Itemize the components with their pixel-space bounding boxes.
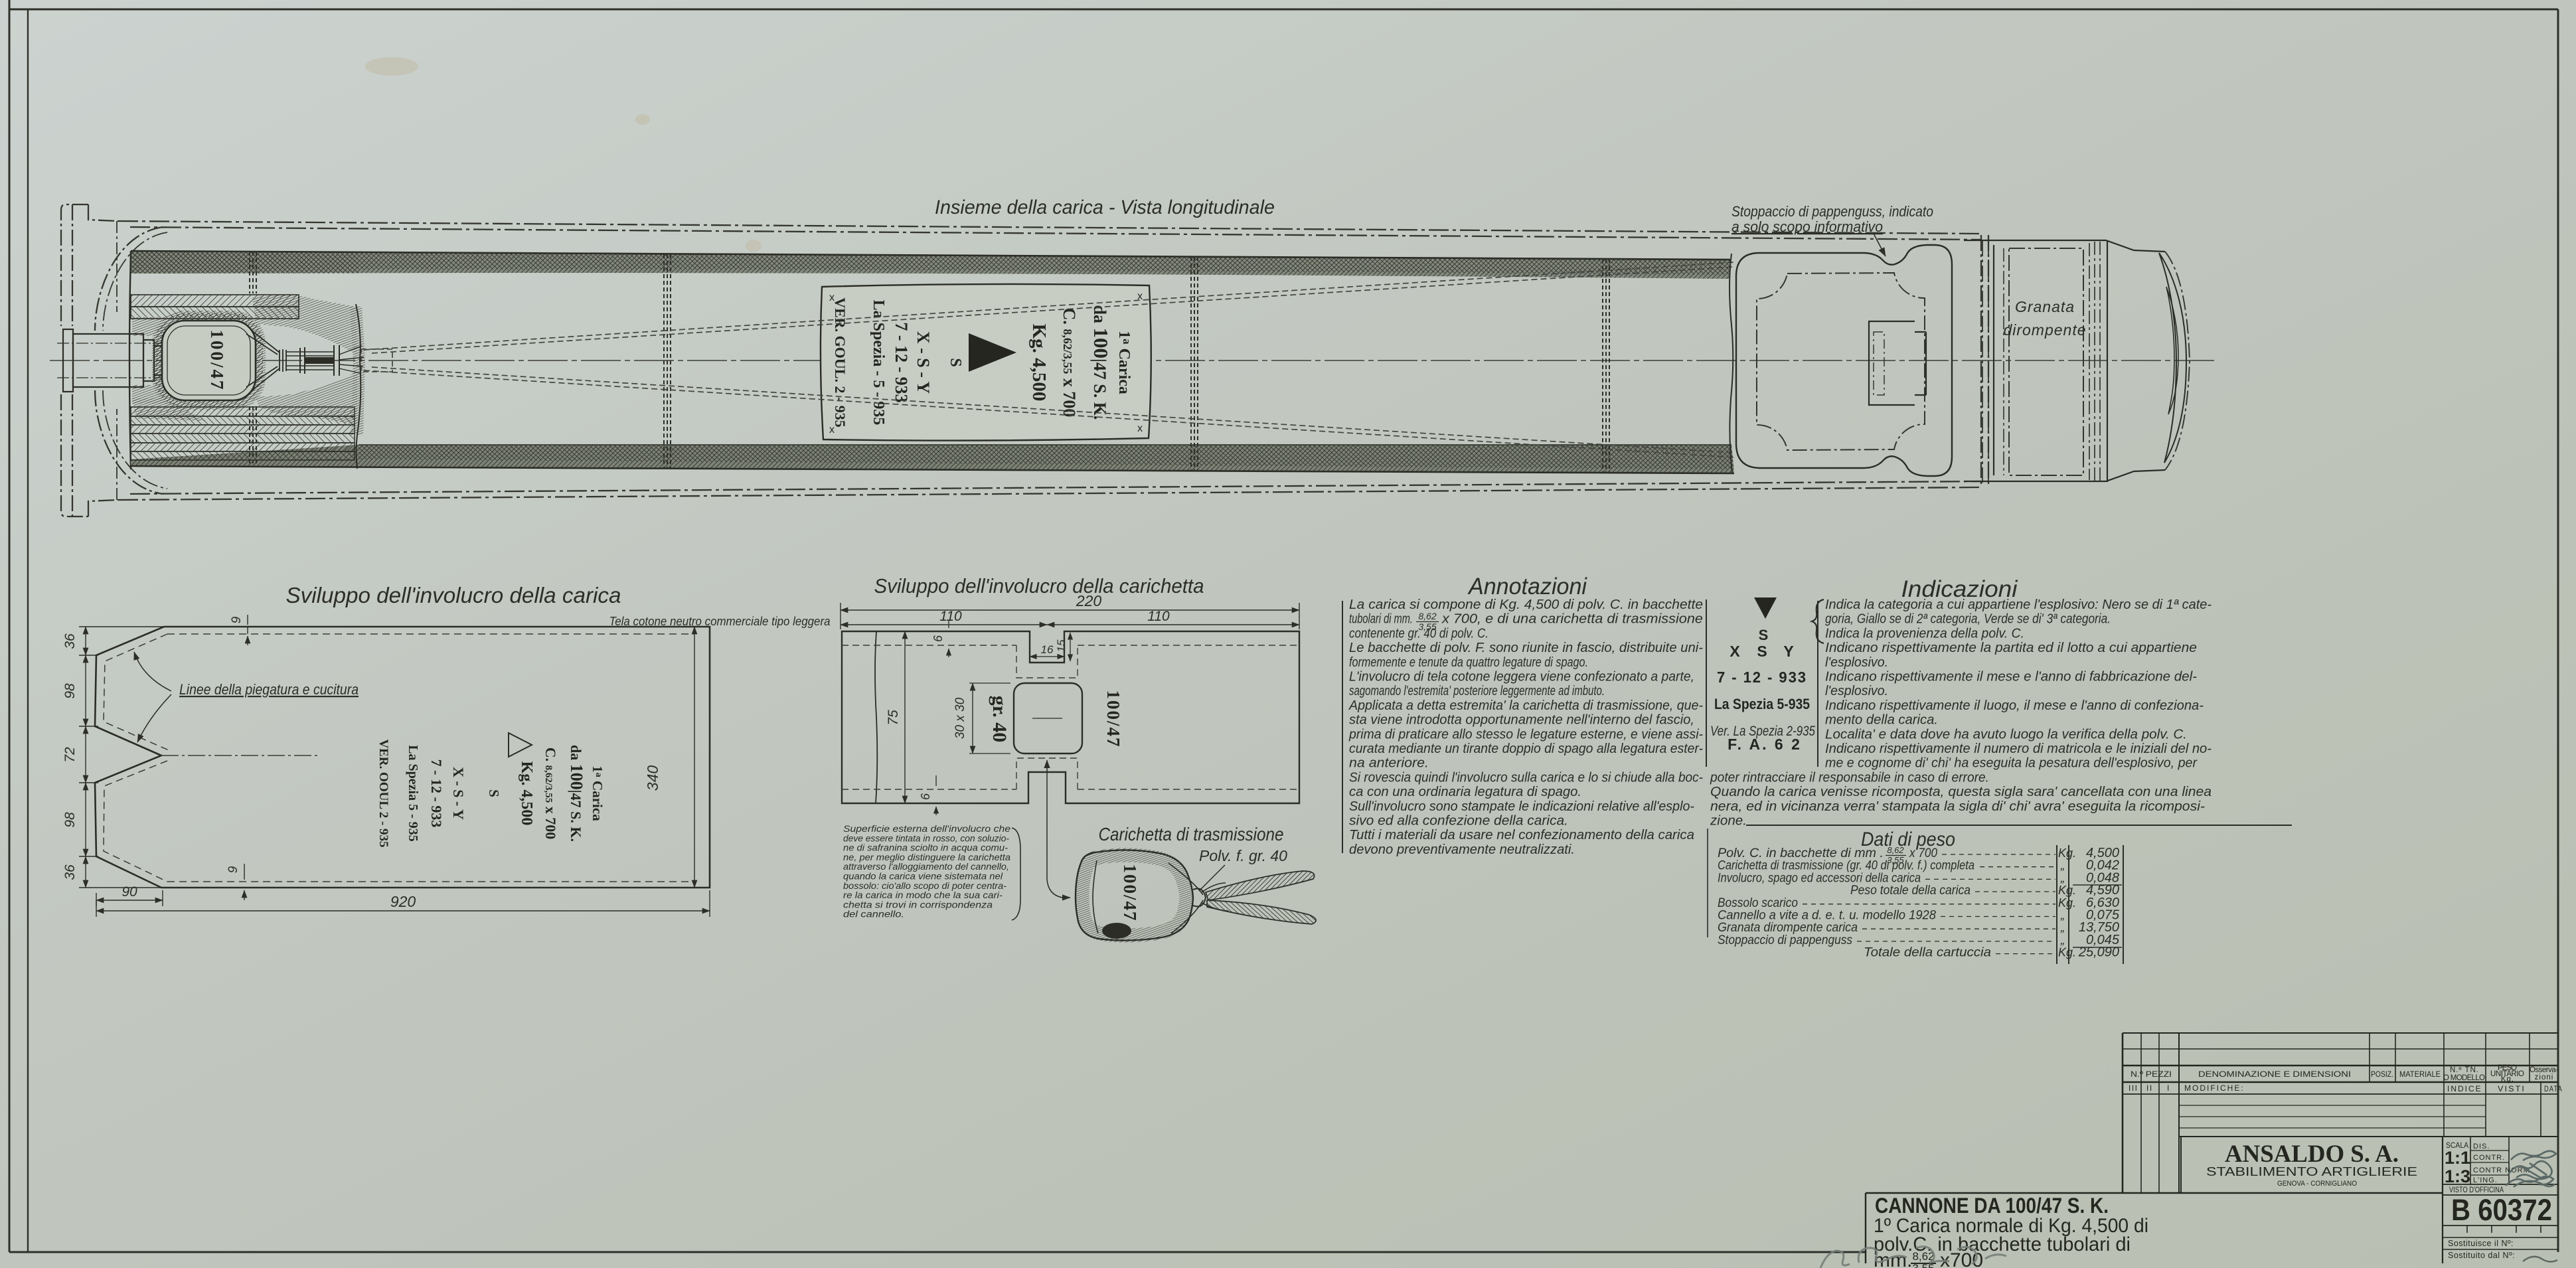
- svg-text:75: 75: [886, 710, 901, 726]
- svg-text:„: „: [2060, 909, 2065, 922]
- svg-text:Sviluppo dell'involucro dell: Sviluppo dell'involucro della carica: [286, 583, 621, 607]
- svg-text:Indica la categoria a cui appa: Indica la categoria a cui appartiene l'e…: [1825, 597, 2212, 612]
- svg-text:15: 15: [1055, 639, 1068, 652]
- svg-text:Y: Y: [1783, 643, 1793, 660]
- svg-text:100/47: 100/47: [207, 329, 227, 391]
- svg-text:STABILIMENTO ARTIGLIERIE: STABILIMENTO ARTIGLIERIE: [2206, 1165, 2417, 1178]
- svg-text:ne di safranina sciolto in acq: ne di safranina sciolto in acqua comu-: [843, 843, 1008, 853]
- svg-text:Indicano rispettivamente il lu: Indicano rispettivamente il luogo, il me…: [1825, 698, 2204, 713]
- svg-text:attraverso l'alloggiamento del: attraverso l'alloggiamento del cannello,: [843, 862, 1009, 872]
- svg-text:220: 220: [1076, 592, 1102, 609]
- svg-text:ca con una ordinaria legatura: ca con una ordinaria legatura di spago.: [1349, 785, 1581, 799]
- svg-text:N.º TN.: N.º TN.: [2450, 1066, 2479, 1074]
- svg-text:„: „: [2060, 871, 2065, 884]
- svg-text:a solo scopo informativo: a solo scopo informativo: [1731, 218, 1883, 235]
- svg-text:Kg. 4,500: Kg. 4,500: [518, 761, 535, 826]
- svg-text:VER. OOUL 2 - 935: VER. OOUL 2 - 935: [376, 739, 390, 847]
- svg-text:Granata: Granata: [2015, 298, 2075, 315]
- svg-text:72: 72: [62, 747, 78, 763]
- svg-text:O MODELLO: O MODELLO: [2443, 1074, 2486, 1082]
- svg-text:98: 98: [62, 812, 78, 828]
- svg-text:La Spezia - 5 - 935: La Spezia - 5 - 935: [870, 300, 887, 426]
- svg-text:L'involucro di tela cotone leg: L'involucro di tela cotone leggera viene…: [1349, 670, 1694, 684]
- svg-text:920: 920: [390, 893, 416, 910]
- svg-text:deve essere tintata in rosso,: deve essere tintata in rosso, con soluzi…: [843, 833, 1010, 843]
- svg-text:„: „: [2060, 933, 2065, 947]
- svg-text:Localita' e data dove ha avuto: Localita' e data dove ha avuto luogo la …: [1825, 727, 2187, 742]
- svg-text:100/47: 100/47: [1120, 864, 1140, 921]
- svg-text:curata mediante un tirante dop: curata mediante un tirante doppio di spa…: [1349, 742, 1703, 756]
- svg-text:La carica si compone di Kg. 4,: La carica si compone di Kg. 4,500 di pol…: [1349, 597, 1703, 612]
- svg-text:Sull'involucro sono stampate l: Sull'involucro sono stampate le indicazi…: [1349, 799, 1694, 814]
- svg-text:Superficie esterna dell'involu: Superficie esterna dell'involucro che: [843, 824, 1010, 834]
- svg-text:Totale della cartuccia: Totale della cartuccia: [1864, 946, 1991, 960]
- svg-text:6: 6: [919, 793, 932, 800]
- svg-text:Si rovescia quindi l'involucro: Si rovescia quindi l'involucro sulla car…: [1349, 770, 1703, 785]
- svg-text:DENOMINAZIONE E DIMENSIONI: DENOMINAZIONE E DIMENSIONI: [2198, 1070, 2351, 1079]
- svg-text:Tutti i materiali da usare nel: Tutti i materiali da usare nel confezion…: [1349, 828, 1694, 842]
- svg-text:MATERIALE: MATERIALE: [2399, 1070, 2441, 1079]
- svg-text:8,62: 8,62: [1887, 845, 1904, 855]
- svg-text:S: S: [1757, 643, 1767, 660]
- svg-text:l'esplosivo.: l'esplosivo.: [1825, 655, 1888, 670]
- svg-text:Indicano rispettivamente la pa: Indicano rispettivamente la partita ed i…: [1825, 641, 2197, 655]
- svg-text:X: X: [1730, 643, 1740, 660]
- svg-text:90: 90: [121, 884, 137, 900]
- svg-text:Linee della piegatura e cu: Linee della piegatura e cucitura: [179, 681, 359, 698]
- svg-text:Polv. f. gr. 40: Polv. f. gr. 40: [1199, 847, 1287, 864]
- svg-text:CONTR NORM: CONTR NORM: [2473, 1166, 2530, 1174]
- svg-text:VISTI: VISTI: [2498, 1084, 2526, 1093]
- svg-text:Kg.: Kg.: [2058, 846, 2076, 860]
- svg-text:x: x: [1137, 423, 1143, 434]
- svg-text:X - S - Y: X - S - Y: [914, 331, 933, 394]
- svg-text:nera, ed in vicinanza verra' s: nera, ed in vicinanza verra' stampata la…: [1710, 799, 2205, 814]
- svg-text:Sviluppo dell'involucro dell: Sviluppo dell'involucro della carichetta: [874, 574, 1204, 597]
- svg-text:POSIZ.: POSIZ.: [2371, 1070, 2393, 1079]
- svg-text:N.º PEZZI: N.º PEZZI: [2131, 1070, 2172, 1079]
- svg-text:CANNONE DA 100/47 S. K.: CANNONE DA 100/47 S. K.: [1875, 1194, 2109, 1218]
- svg-text:Indica la provenienza della po: Indica la provenienza della polv. C.: [1825, 626, 2024, 641]
- svg-text:16: 16: [1041, 643, 1054, 656]
- svg-text:x 700, e di una carichetta di: x 700, e di una carichetta di trasmissio…: [1441, 612, 1703, 627]
- svg-text:ne, per meglio distinguere la: ne, per meglio distinguere la carichetta: [843, 852, 1011, 862]
- svg-text:CONTR.: CONTR.: [2473, 1154, 2505, 1162]
- svg-text:340: 340: [644, 765, 661, 791]
- svg-text:quando la carica viene sistema: quando la carica viene sistemata nel: [843, 872, 1003, 882]
- svg-text:DATA: DATA: [2544, 1084, 2563, 1093]
- svg-text:Quando la carica venisse ricom: Quando la carica venisse ricomposta, que…: [1710, 785, 2212, 799]
- svg-text:Applicata a detta estremita' l: Applicata a detta estremita' la carichet…: [1348, 698, 1703, 713]
- svg-text:me e cognome di' chi' ha esegu: me e cognome di' chi' ha eseguita la pes…: [1825, 756, 2198, 771]
- svg-text:110: 110: [939, 609, 962, 624]
- svg-text:Stoppaccio di pappenguss, in: Stoppaccio di pappenguss, indicato: [1731, 203, 1933, 220]
- svg-text:Kg.: Kg.: [2501, 1075, 2514, 1083]
- svg-text:7 - 12 - 933: 7 - 12 - 933: [428, 759, 445, 828]
- svg-text:36: 36: [62, 864, 78, 880]
- svg-text:F. A. 6 2: F. A. 6 2: [1728, 736, 1802, 753]
- svg-text:1:3: 1:3: [2445, 1166, 2470, 1186]
- svg-text:Kg. 4,500: Kg. 4,500: [1028, 324, 1050, 402]
- svg-text:Insieme della carica - Vis: Insieme della carica - Vista longitudina…: [935, 197, 1275, 218]
- svg-text:110: 110: [1147, 609, 1170, 624]
- svg-text:l'esplosivo.: l'esplosivo.: [1825, 684, 1888, 698]
- svg-text:bossolo: cio'allo scopo di pot: bossolo: cio'allo scopo di poter centra-: [843, 881, 1007, 891]
- svg-text:„: „: [2060, 859, 2065, 872]
- svg-text:La Spezia 5 - 935: La Spezia 5 - 935: [406, 745, 420, 842]
- svg-text:9: 9: [230, 616, 244, 623]
- svg-text:Kg.: Kg.: [2058, 896, 2076, 910]
- svg-text:formemente e tenute da quattro: formemente e tenute da quattro legature …: [1349, 655, 1588, 670]
- svg-text:Indicano rispettivamente il nu: Indicano rispettivamente il numero di ma…: [1825, 742, 2212, 756]
- svg-text:8,62: 8,62: [1418, 611, 1436, 621]
- svg-text:III: III: [2129, 1083, 2138, 1093]
- svg-text:La Spezia 5-935: La Spezia 5-935: [1714, 696, 1810, 712]
- svg-text:II: II: [2146, 1083, 2153, 1093]
- svg-text:98: 98: [62, 683, 78, 699]
- svg-text:contenente gr. 40 di polv. C.: contenente gr. 40 di polv. C.: [1349, 626, 1489, 641]
- svg-text:mm.: mm.: [1874, 1249, 1912, 1268]
- svg-text:1:1: 1:1: [2445, 1148, 2470, 1168]
- svg-text:VER. GOUL. 2 - 935: VER. GOUL. 2 - 935: [832, 297, 848, 428]
- svg-text:mento della carica.: mento della carica.: [1825, 713, 1938, 728]
- svg-text:Le bacchette di polv. F. sono: Le bacchette di polv. F. sono riunite in…: [1349, 641, 1703, 655]
- svg-text:S: S: [947, 358, 964, 366]
- svg-text:MODIFICHE:: MODIFICHE:: [2184, 1083, 2245, 1093]
- svg-text:del cannello.: del cannello.: [843, 910, 904, 919]
- svg-text:zione.: zione.: [1710, 814, 1747, 829]
- svg-text:tubolari di mm.: tubolari di mm.: [1349, 612, 1413, 627]
- svg-text:30 x 30: 30 x 30: [953, 697, 967, 739]
- svg-text:chetta si trovi in corrisponde: chetta si trovi in corrispondenza: [843, 900, 993, 910]
- svg-text:Kg.: Kg.: [2058, 884, 2076, 897]
- svg-text:Annotazioni: Annotazioni: [1467, 574, 1587, 599]
- svg-text:6: 6: [931, 635, 945, 642]
- svg-text:prima di praticare allo stesso: prima di praticare allo stesso le legatu…: [1348, 727, 1703, 742]
- svg-text:goria, Giallo se di 2ª categor: goria, Giallo se di 2ª categoria, Verde …: [1825, 612, 2111, 627]
- svg-text:Carichetta di trasmissione: Carichetta di trasmissione: [1099, 824, 1284, 844]
- svg-text:Stoppaccio di pappenguss: Stoppaccio di pappenguss: [1718, 933, 1852, 947]
- svg-text:zioni: zioni: [2535, 1073, 2554, 1081]
- svg-text:X - S - Y: X - S - Y: [450, 767, 467, 820]
- svg-text:dirompente: dirompente: [2003, 321, 2086, 339]
- svg-text:100/47: 100/47: [1103, 690, 1123, 748]
- svg-text:7 - 12 - 933: 7 - 12 - 933: [1717, 669, 1807, 686]
- svg-text:ANSALDO S. A.: ANSALDO S. A.: [2225, 1141, 2399, 1168]
- svg-text:S: S: [486, 789, 502, 797]
- svg-text:da 100|47 S. K.: da 100|47 S. K.: [1089, 305, 1113, 420]
- svg-text:poter rintracciare il responsa: poter rintracciare il responsabile in ca…: [1710, 770, 1989, 785]
- svg-text:7 - 12 - 933: 7 - 12 - 933: [892, 322, 911, 402]
- svg-text:Peso totale della carica: Peso totale della carica: [1850, 884, 1971, 898]
- svg-text:L'ING.: L'ING.: [2473, 1176, 2498, 1184]
- svg-text:INDICE: INDICE: [2447, 1084, 2482, 1093]
- svg-text:da 100|47 S. K.: da 100|47 S. K.: [567, 745, 586, 842]
- svg-text:S: S: [1759, 627, 1769, 643]
- svg-text:B 60372: B 60372: [2451, 1193, 2552, 1227]
- svg-text:9: 9: [226, 866, 240, 873]
- svg-text:Sostituito dal Nº:: Sostituito dal Nº:: [2448, 1251, 2515, 1260]
- svg-text:Indicano rispettivamente il me: Indicano rispettivamente il mese e l'ann…: [1825, 670, 2197, 684]
- svg-text:I: I: [2167, 1083, 2170, 1093]
- svg-text:„: „: [2060, 921, 2065, 934]
- svg-text:GENOVA - CORNIGLIANO: GENOVA - CORNIGLIANO: [2277, 1180, 2357, 1188]
- svg-text:36: 36: [62, 633, 78, 649]
- svg-text:na anteriore.: na anteriore.: [1349, 756, 1429, 771]
- svg-text:re la carica in modo che la su: re la carica in modo che la sua cari-: [843, 890, 1003, 900]
- svg-text:gr. 40: gr. 40: [989, 696, 1010, 743]
- svg-text:DIS.: DIS.: [2473, 1143, 2490, 1150]
- svg-text:sagomando l'estremita' posteri: sagomando l'estremita' posteriore legger…: [1349, 684, 1605, 698]
- svg-text:Sostituisce il Nº:: Sostituisce il Nº:: [2448, 1239, 2514, 1248]
- svg-text:sta viene introdotta opportuna: sta viene introdotta opportunamente nell…: [1349, 713, 1694, 728]
- svg-text:sivo ed alla confezione della: sivo ed alla confezione della carica.: [1349, 814, 1568, 829]
- svg-text:devono preventivamente neutral: devono preventivamente neutralizzati.: [1349, 842, 1575, 857]
